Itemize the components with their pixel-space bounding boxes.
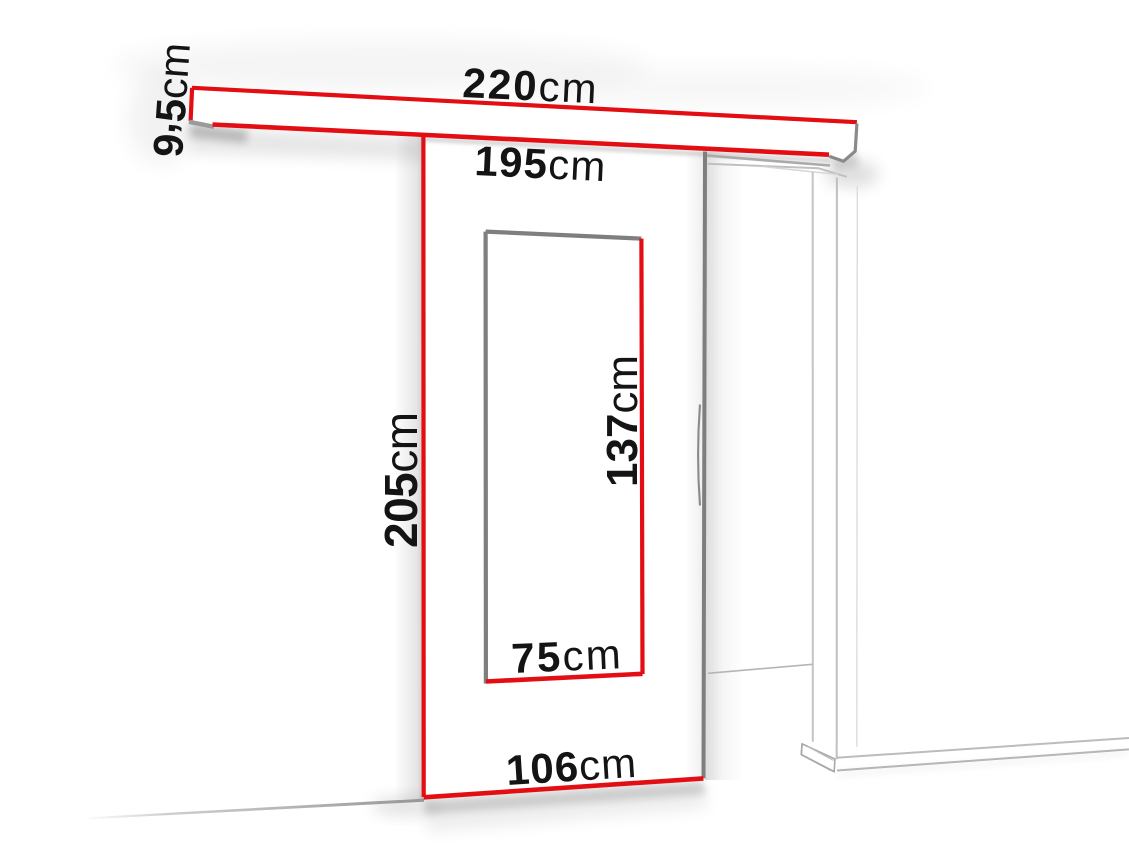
svg-text:75cm: 75cm [510,630,623,682]
svg-text:205cm: 205cm [375,412,427,548]
svg-text:195cm: 195cm [474,137,608,190]
svg-text:220cm: 220cm [462,59,600,112]
svg-text:106cm: 106cm [505,739,639,794]
svg-text:137cm: 137cm [598,355,647,487]
